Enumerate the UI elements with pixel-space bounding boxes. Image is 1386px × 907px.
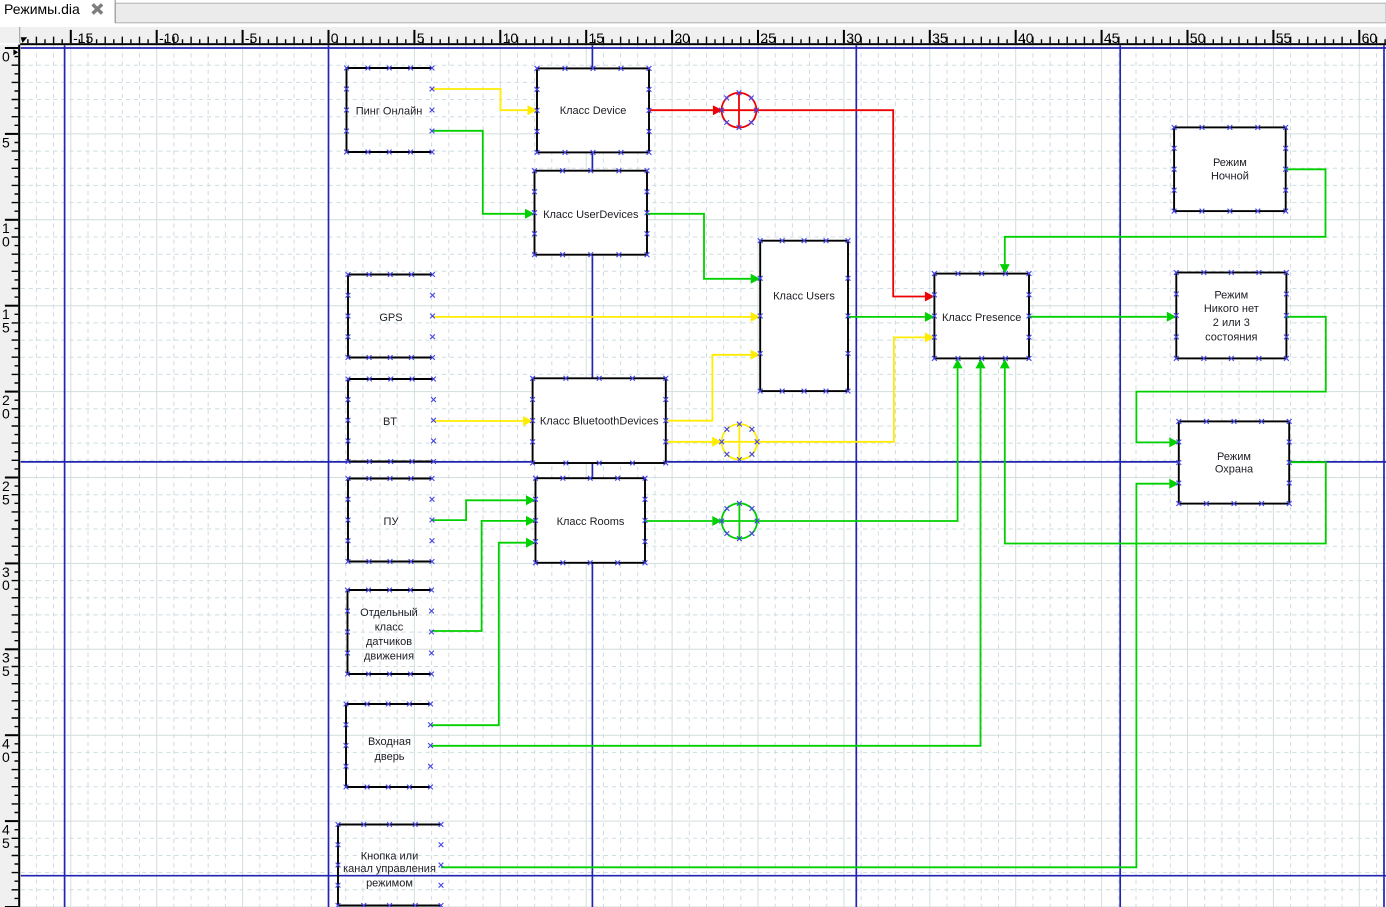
svg-text:5: 5: [2, 320, 10, 336]
svg-text:класс: класс: [375, 622, 404, 634]
svg-text:состояния: состояния: [1205, 331, 1257, 343]
svg-text:ПУ: ПУ: [384, 516, 400, 528]
svg-text:Класс Presence: Класс Presence: [942, 312, 1021, 324]
svg-text:5: 5: [2, 491, 10, 507]
svg-text:Ночной: Ночной: [1211, 170, 1249, 182]
svg-text:0: 0: [2, 749, 10, 765]
svg-text:Охрана: Охрана: [1215, 464, 1254, 476]
svg-text:Класс BluetoothDevices: Класс BluetoothDevices: [540, 416, 659, 428]
svg-text:режимом: режимом: [366, 878, 413, 890]
svg-text:5: 5: [2, 663, 10, 679]
svg-text:Класс UserDevices: Класс UserDevices: [543, 209, 639, 221]
svg-text:Отдельный: Отдельный: [360, 607, 418, 619]
svg-text:дверь: дверь: [374, 751, 404, 763]
svg-text:Класс Rooms: Класс Rooms: [557, 516, 625, 528]
svg-text:Режим: Режим: [1217, 451, 1251, 463]
svg-text:0: 0: [2, 577, 10, 593]
svg-text:5: 5: [2, 835, 10, 851]
svg-text:BT: BT: [383, 416, 397, 428]
svg-text:Пинг Онлайн: Пинг Онлайн: [356, 106, 423, 118]
svg-text:датчиков: датчиков: [366, 636, 412, 648]
svg-text:Входная: Входная: [368, 736, 411, 748]
svg-text:Никого нет: Никого нет: [1204, 303, 1259, 315]
svg-text:Класс Device: Класс Device: [560, 105, 627, 117]
svg-text:Класс Users: Класс Users: [773, 290, 835, 302]
svg-text:движения: движения: [364, 651, 414, 663]
svg-text:5: 5: [2, 134, 10, 150]
svg-text:0: 0: [2, 234, 10, 250]
svg-text:канал управления: канал управления: [343, 863, 436, 875]
svg-text:0: 0: [2, 405, 10, 421]
svg-text:Режимы.dia: Режимы.dia: [4, 1, 80, 17]
svg-text:Кнопка или: Кнопка или: [361, 851, 419, 863]
svg-text:0: 0: [2, 48, 10, 64]
svg-text:Режим: Режим: [1214, 289, 1248, 301]
svg-text:GPS: GPS: [379, 312, 402, 324]
svg-text:2 или 3: 2 или 3: [1213, 317, 1250, 329]
svg-text:Режим: Режим: [1213, 157, 1247, 169]
